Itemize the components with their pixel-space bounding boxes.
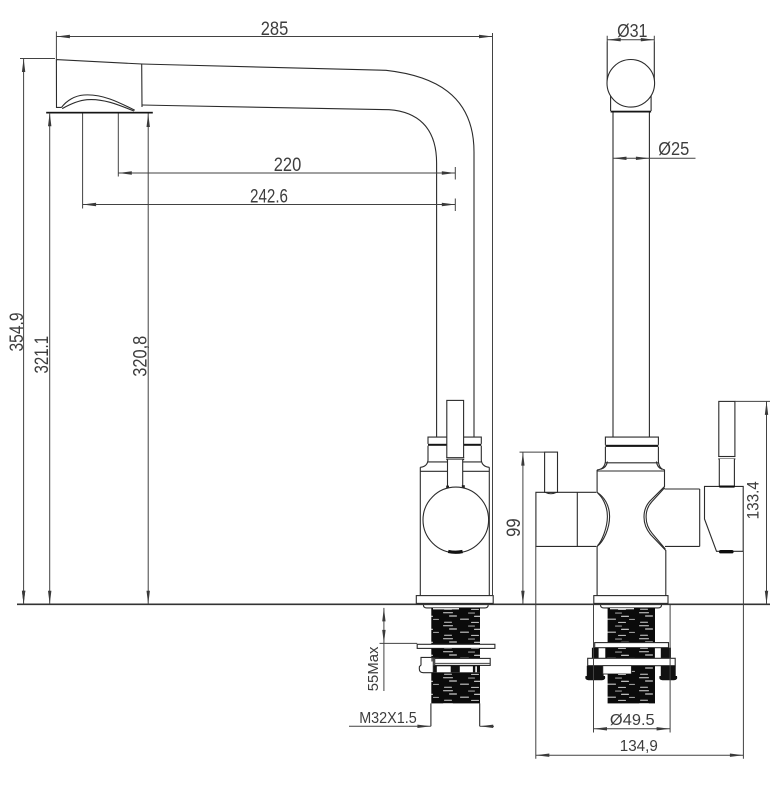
svg-text:220: 220 (274, 154, 302, 176)
svg-text:242.6: 242.6 (250, 186, 288, 208)
svg-text:133.4: 133.4 (744, 481, 763, 519)
svg-text:Ø25: Ø25 (658, 138, 689, 159)
svg-text:354.9: 354.9 (6, 313, 28, 352)
svg-text:320,8: 320,8 (130, 336, 152, 377)
svg-text:285: 285 (261, 18, 289, 40)
svg-text:Ø31: Ø31 (617, 21, 647, 41)
svg-text:321.1: 321.1 (31, 336, 53, 374)
svg-text:99: 99 (504, 518, 525, 537)
svg-text:134,9: 134,9 (620, 738, 658, 755)
svg-text:Ø49.5: Ø49.5 (610, 712, 655, 729)
svg-text:M32X1.5: M32X1.5 (359, 710, 417, 727)
svg-text:55Max: 55Max (365, 646, 382, 691)
